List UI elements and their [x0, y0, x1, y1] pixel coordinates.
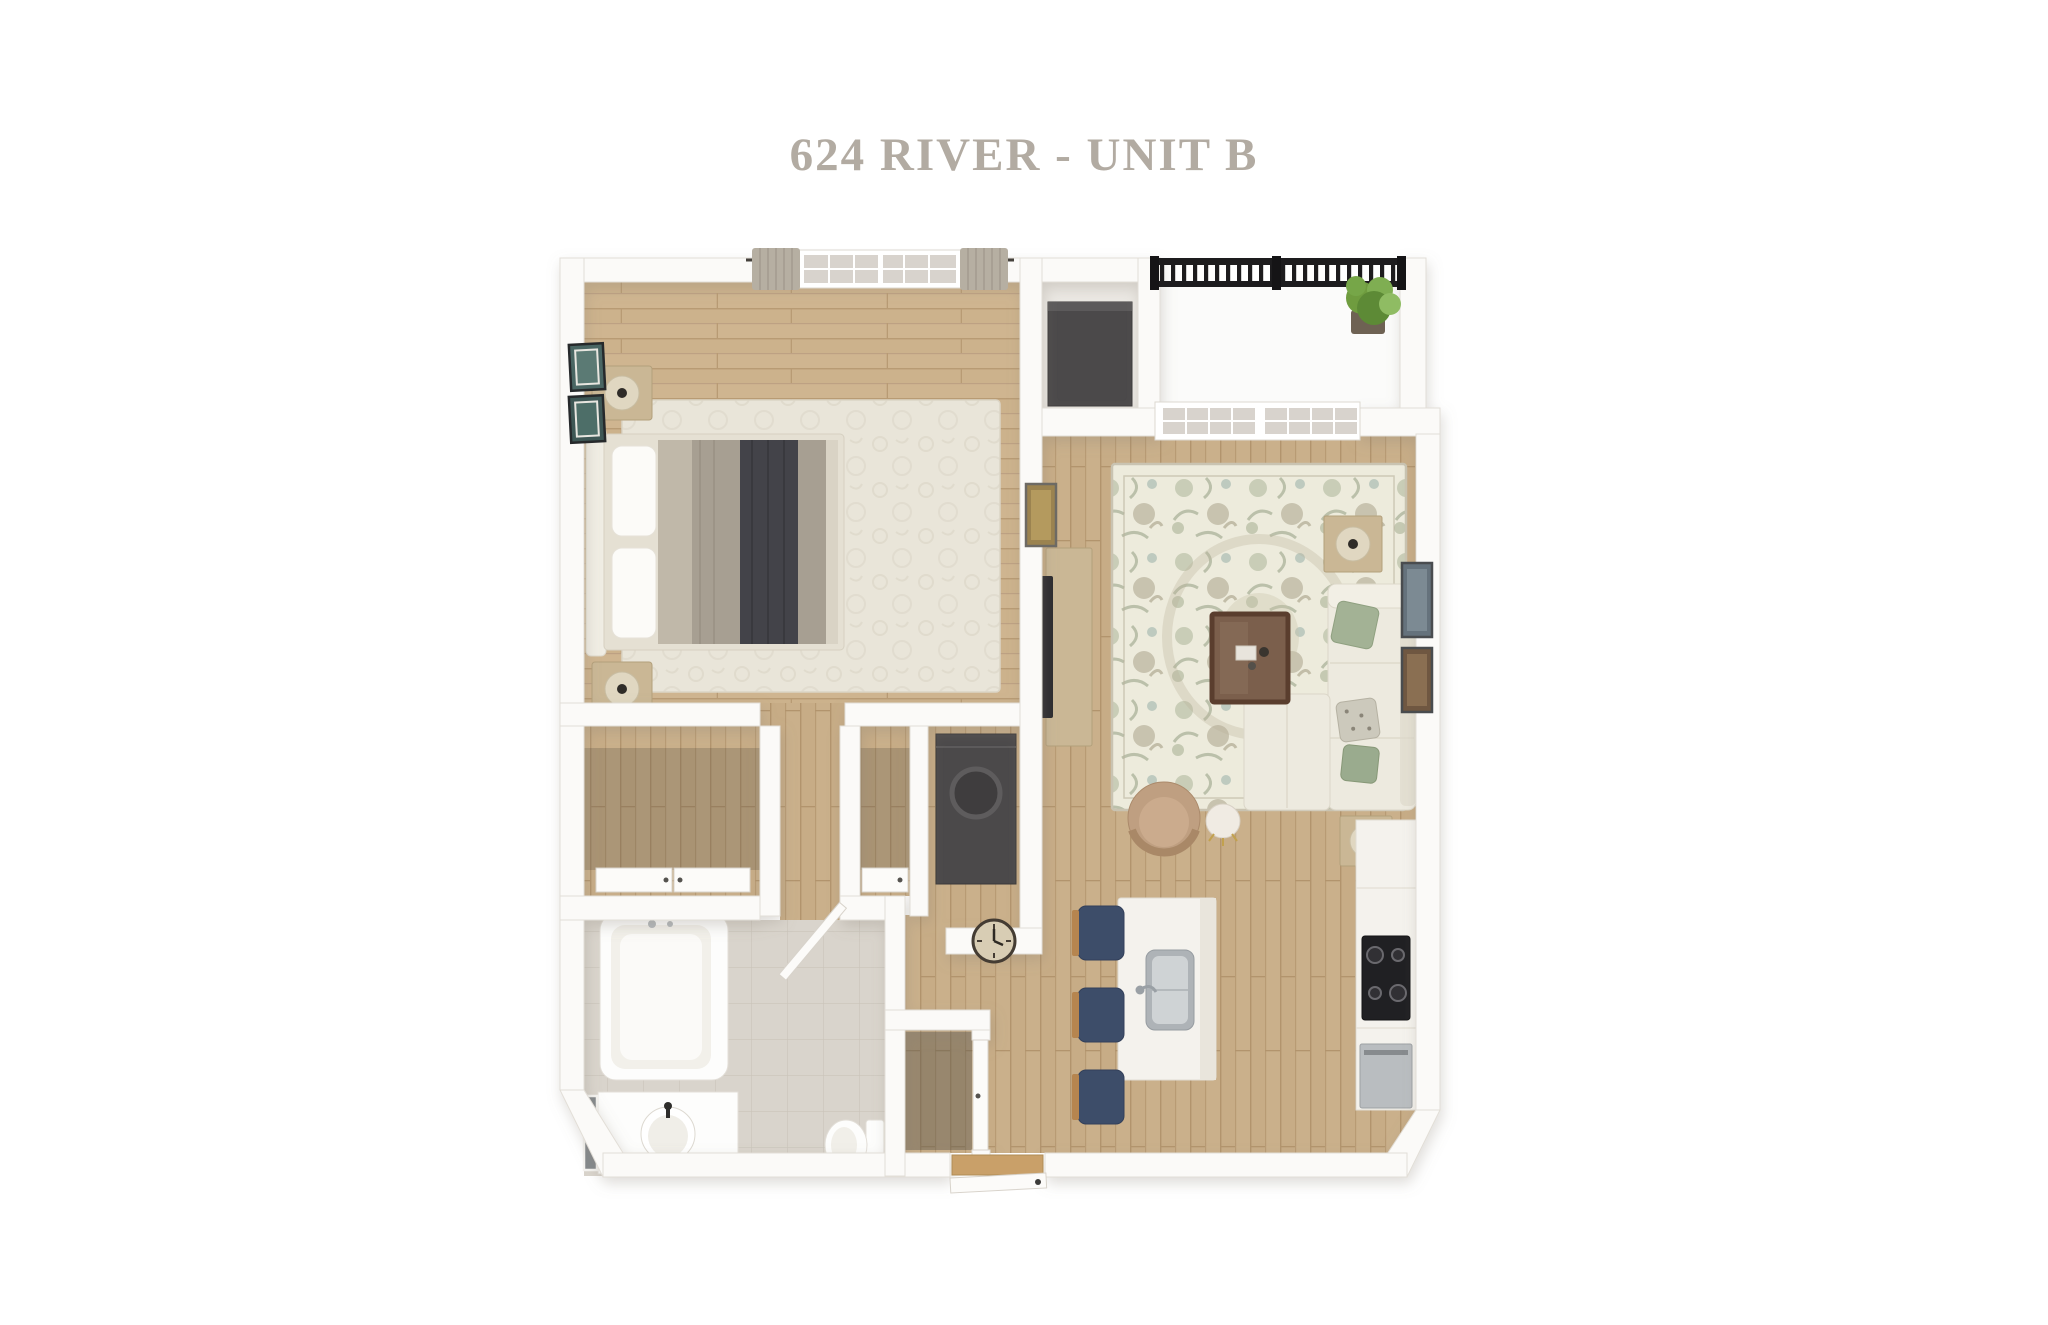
floor-plan-svg [500, 248, 1500, 1248]
accent-chair [1128, 782, 1200, 854]
door-handle [1035, 1179, 1041, 1185]
storage-unit [1048, 302, 1132, 406]
wall-right [1416, 434, 1440, 1110]
storage-unit-top [1048, 302, 1132, 311]
wall-bathroom-east [885, 896, 905, 1176]
floor-plan [500, 248, 1500, 1248]
entry-closet-door [973, 1040, 988, 1150]
tv [1041, 576, 1053, 718]
wall-art-living-east [1402, 563, 1432, 637]
wall-divider [1020, 258, 1042, 928]
bed-pillow [612, 446, 656, 536]
table-decor [1236, 646, 1256, 660]
living-window [1155, 402, 1360, 440]
washer-dryer [936, 734, 1016, 884]
wall-closet-b-west [840, 726, 860, 916]
plan-title: 624 RIVER - UNIT B [0, 128, 2048, 182]
wall-closet-a-east [760, 726, 780, 916]
green-pillow [1330, 600, 1380, 650]
sage-pillow [1340, 744, 1380, 784]
wall-entry-closet-east-stub [972, 1030, 990, 1040]
dishwasher [1360, 1044, 1412, 1108]
curtain [752, 248, 800, 290]
wall-entry-closet-north [885, 1010, 990, 1030]
entry-threshold [952, 1155, 1043, 1175]
wall-clock [973, 920, 1015, 962]
bar-stool [1072, 1070, 1124, 1124]
bedroom-window [746, 248, 1014, 290]
wall-bathroom-north [560, 896, 760, 920]
closet-b-shadow [860, 748, 910, 870]
bedroom-doorway-floor [760, 703, 845, 726]
page: 624 RIVER - UNIT B [0, 0, 2048, 1325]
blanket-fold [658, 440, 692, 644]
wall-art-living-west [1026, 484, 1056, 546]
kitchen-island [1118, 898, 1216, 1080]
curtain [960, 248, 1008, 290]
wall-bedroom-south-right [845, 703, 1020, 726]
wall-bedroom-south-left [560, 703, 760, 726]
bed-pillow [612, 548, 656, 638]
coffee-table [1212, 614, 1288, 702]
patterned-pillow [1335, 697, 1380, 742]
headboard [586, 428, 606, 656]
wall-art-bedroom [569, 343, 605, 391]
entry-closet-shadow [905, 1032, 972, 1150]
bed-foot-edge [826, 440, 838, 644]
hall-floor [780, 726, 840, 928]
throw-blanket [740, 440, 798, 644]
kitchen-counter [1356, 820, 1416, 1110]
cooktop [1362, 936, 1410, 1020]
closet-a-shadow [584, 748, 760, 870]
wall-closet-b-east [910, 726, 928, 916]
bar-stool [1072, 988, 1124, 1042]
wall-art-living-east [1402, 648, 1432, 712]
wall-bottom-right [1045, 1153, 1407, 1177]
tub-faucet [648, 920, 656, 928]
round-side-stool [1206, 804, 1240, 846]
closet-b-door [862, 868, 908, 892]
wall-living-top-right [1358, 408, 1440, 436]
bathtub [600, 914, 728, 1080]
wall-art-bedroom [569, 395, 605, 443]
entry-door [950, 1155, 1047, 1193]
side-table-with-lamp [1324, 516, 1382, 572]
bar-stool [1072, 906, 1124, 960]
